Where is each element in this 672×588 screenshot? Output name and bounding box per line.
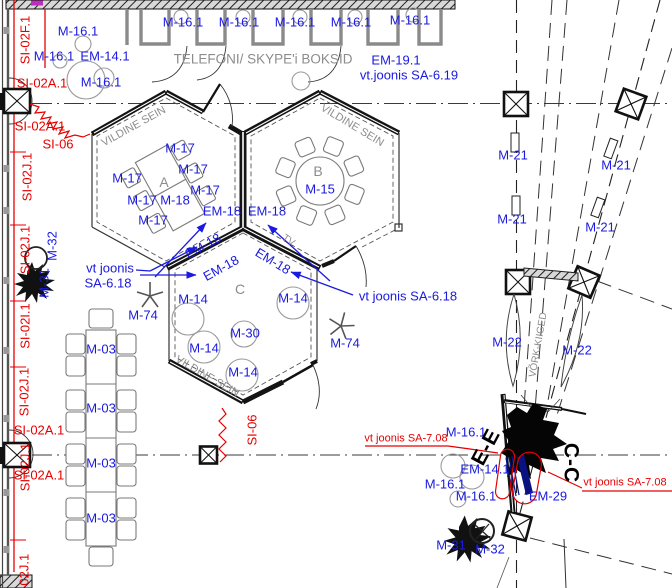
magenta-wall-mark xyxy=(31,1,43,6)
table-m03-group xyxy=(66,309,136,566)
floor-plan: M-16.1M-16.1M-16.1M-16.1M-16.1M-16.1M-16… xyxy=(0,0,672,588)
plant-m31-right xyxy=(444,516,491,563)
table-m15-group xyxy=(275,136,365,226)
pot-m32-left xyxy=(25,247,47,269)
floor-plan-linework xyxy=(0,0,672,588)
net-swing-left xyxy=(506,294,520,386)
plant-m74-left xyxy=(137,282,163,307)
beam xyxy=(524,268,578,281)
phone-booths xyxy=(127,8,441,82)
plant-m74-right xyxy=(326,309,358,340)
swing-zone xyxy=(506,133,618,387)
